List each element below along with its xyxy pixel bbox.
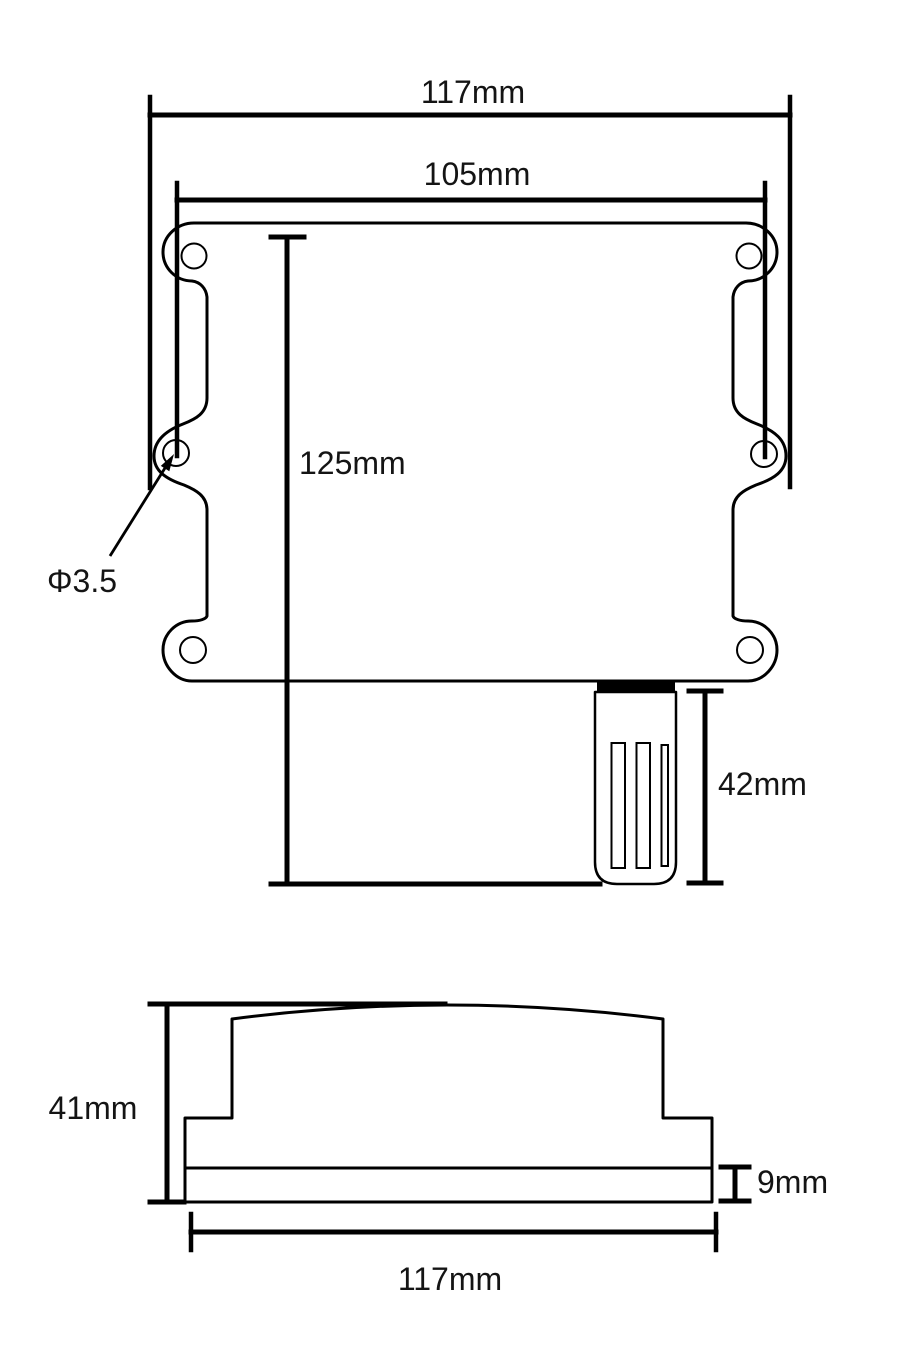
probe-vent-slot-left (612, 743, 626, 868)
dim-label-overall-width: 117mm (421, 74, 525, 110)
dim-label-side-width: 117mm (398, 1261, 502, 1297)
probe-vent-slot-middle (637, 743, 651, 868)
side-view-figure: 41mm 9mm 117mm (49, 1004, 829, 1297)
dim-label-base-thickness: 9mm (757, 1164, 828, 1200)
probe-collar (597, 680, 675, 692)
enclosure-outline (154, 223, 786, 681)
dimension-base-thickness: 9mm (721, 1164, 828, 1201)
technical-drawing-page: 117mm 105mm 125mm 42mm Φ3.5 (0, 0, 900, 1348)
dimension-probe-length: 42mm (689, 691, 807, 883)
callout-hole-diameter: Φ3.5 (47, 454, 174, 599)
dimension-side-width: 117mm (191, 1214, 716, 1297)
leader-line (110, 468, 165, 556)
probe-vent-slot-right (662, 745, 669, 866)
dim-label-hole-spacing: 105mm (424, 156, 531, 192)
front-view-figure: 117mm 105mm 125mm 42mm Φ3.5 (47, 74, 807, 884)
dim-label-hole-diameter: Φ3.5 (47, 563, 117, 599)
dim-label-body-height: 125mm (299, 445, 406, 481)
dim-label-side-height: 41mm (49, 1090, 138, 1126)
dim-label-probe-length: 42mm (718, 766, 807, 802)
side-profile-outline (185, 1005, 712, 1202)
